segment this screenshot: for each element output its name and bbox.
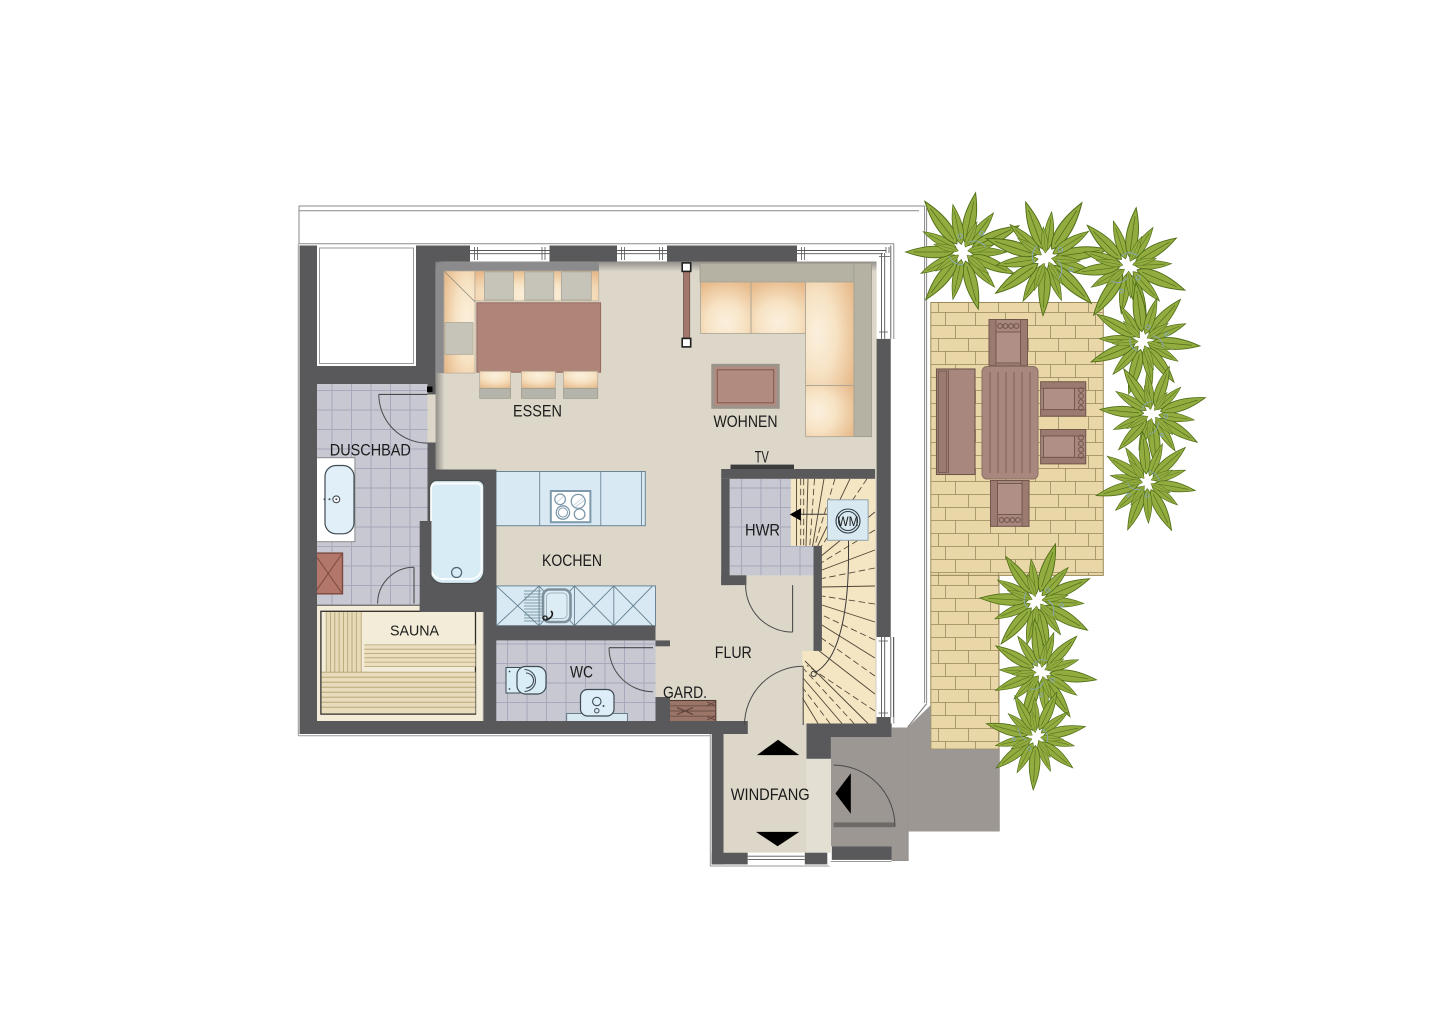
svg-text:WINDFANG: WINDFANG	[731, 786, 810, 804]
svg-text:WOHNEN: WOHNEN	[714, 413, 778, 431]
svg-text:KOCHEN: KOCHEN	[542, 552, 602, 570]
svg-text:ESSEN: ESSEN	[513, 402, 562, 420]
svg-text:WC: WC	[570, 663, 593, 681]
svg-text:SAUNA: SAUNA	[390, 623, 439, 640]
svg-text:WM: WM	[838, 513, 859, 529]
svg-text:HWR: HWR	[745, 522, 780, 540]
svg-text:FLUR: FLUR	[715, 644, 752, 662]
svg-text:GARD.: GARD.	[663, 684, 707, 702]
svg-text:TV: TV	[755, 449, 769, 467]
svg-text:DUSCHBAD: DUSCHBAD	[330, 441, 411, 459]
